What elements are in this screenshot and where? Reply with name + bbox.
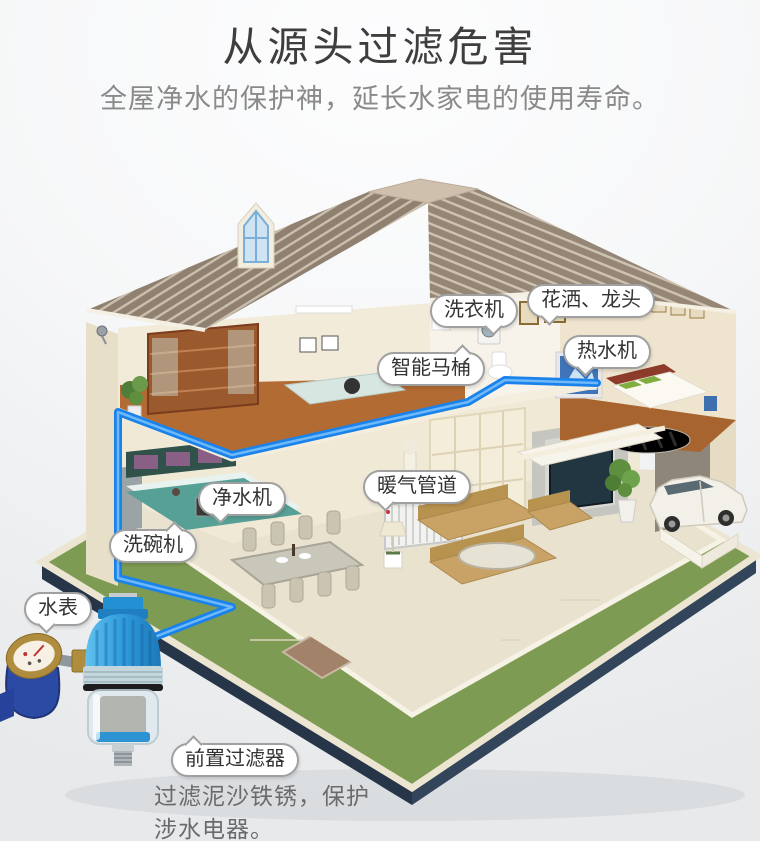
label-water-meter: 水表 bbox=[24, 592, 92, 626]
label-text: 洗衣机 bbox=[444, 299, 504, 321]
house-illustration bbox=[0, 0, 760, 841]
filter-cartridge bbox=[100, 696, 146, 738]
label-shower-faucet: 花洒、龙头 bbox=[527, 284, 655, 318]
description-line1: 过滤泥沙铁锈，保护 bbox=[154, 780, 370, 813]
description-line2: 涉水电器。 bbox=[154, 813, 370, 841]
dormer bbox=[238, 203, 274, 268]
prefilter-description: 过滤泥沙铁锈，保护 涉水电器。 bbox=[154, 780, 370, 841]
office-chair bbox=[344, 378, 360, 394]
label-text: 水表 bbox=[38, 597, 78, 619]
nightstand bbox=[704, 396, 717, 411]
label-washing-machine: 洗衣机 bbox=[430, 294, 518, 328]
label-water-purifier: 净水机 bbox=[198, 482, 286, 516]
coffee-table bbox=[459, 543, 535, 569]
label-text: 花洒、龙头 bbox=[541, 289, 641, 311]
label-text: 前置过滤器 bbox=[185, 748, 285, 770]
page-title: 从源头过滤危害 bbox=[0, 13, 760, 73]
kettle bbox=[172, 488, 180, 496]
label-text: 智能马桶 bbox=[391, 357, 471, 379]
label-heating-pipes: 暖气管道 bbox=[363, 470, 471, 504]
label-water-heater: 热水机 bbox=[563, 335, 651, 369]
label-prefilter: 前置过滤器 bbox=[171, 743, 299, 777]
promo-page: 从源头过滤危害 全屋净水的保护神，延长水家电的使用寿命。 bbox=[0, 0, 760, 841]
label-smart-toilet: 智能马桶 bbox=[377, 352, 485, 386]
label-text: 暖气管道 bbox=[377, 475, 457, 497]
water-meter-device bbox=[0, 628, 94, 722]
label-dishwasher: 洗碗机 bbox=[109, 529, 197, 563]
page-subtitle: 全屋净水的保护神，延长水家电的使用寿命。 bbox=[0, 77, 760, 116]
